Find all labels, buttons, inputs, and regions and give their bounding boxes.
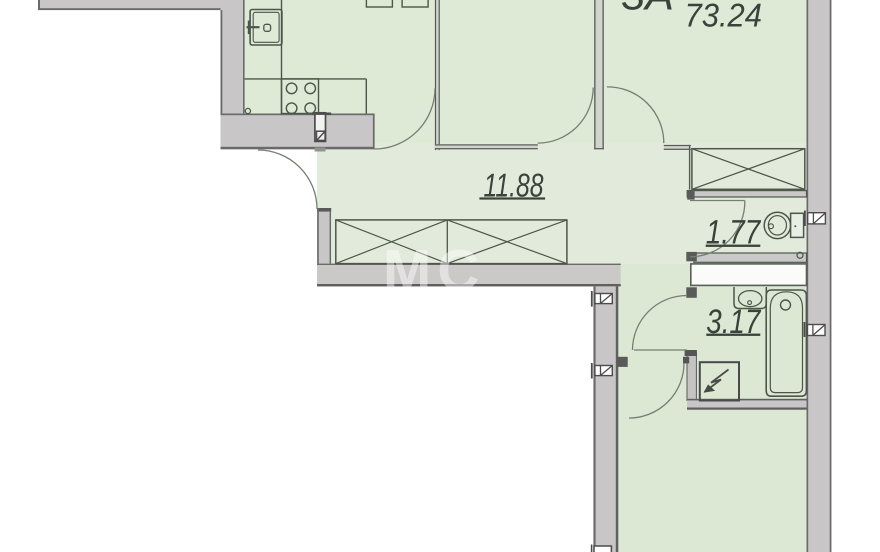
svg-text:МС: МС: [383, 238, 485, 303]
svg-text:3A: 3A: [621, 0, 674, 19]
svg-text:73.24: 73.24: [685, 0, 763, 33]
